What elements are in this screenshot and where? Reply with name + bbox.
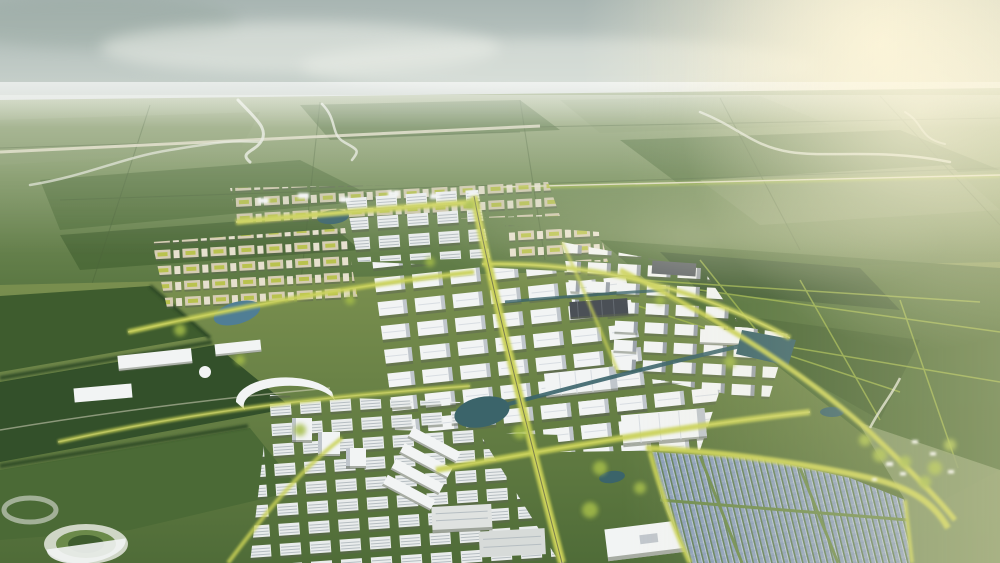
dome-pavilion (199, 366, 211, 378)
aerial-rendering (0, 0, 1000, 563)
drifting-haze (430, 180, 950, 300)
scene-canvas (0, 0, 1000, 563)
